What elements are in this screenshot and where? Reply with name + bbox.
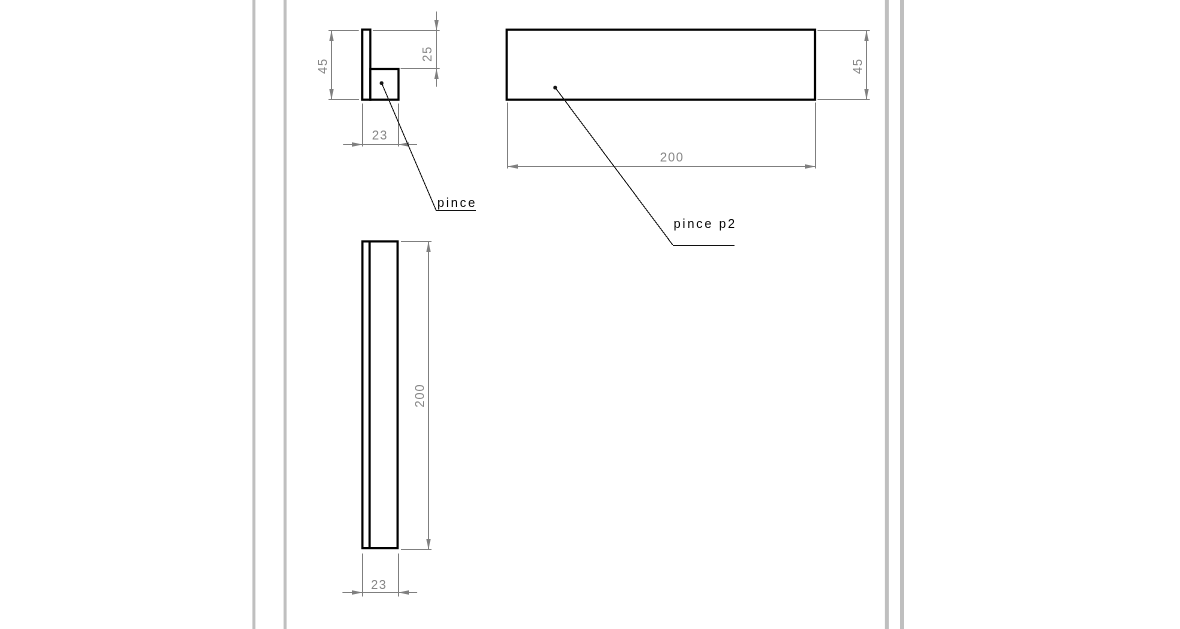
- svg-text:200: 200: [660, 151, 684, 165]
- svg-text:25: 25: [421, 46, 435, 62]
- svg-text:23: 23: [372, 129, 388, 143]
- svg-text:23: 23: [371, 578, 387, 592]
- svg-text:pince: pince: [437, 196, 477, 210]
- svg-text:pince p2: pince p2: [674, 217, 737, 231]
- svg-text:200: 200: [413, 383, 427, 407]
- svg-text:45: 45: [316, 58, 330, 74]
- svg-text:45: 45: [851, 58, 865, 74]
